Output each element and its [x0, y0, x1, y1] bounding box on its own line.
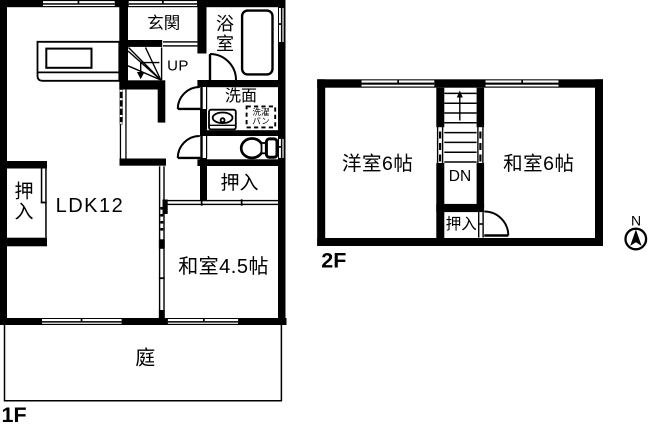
- svg-text:押入: 押入: [446, 215, 477, 233]
- svg-text:1F: 1F: [2, 403, 27, 426]
- svg-text:パン: パン: [252, 116, 269, 126]
- svg-text:浴: 浴: [216, 14, 234, 34]
- svg-text:玄関: 玄関: [147, 13, 180, 32]
- svg-text:庭: 庭: [135, 346, 155, 369]
- svg-text:押入: 押入: [220, 172, 258, 194]
- svg-text:N: N: [631, 213, 641, 229]
- svg-text:押: 押: [14, 181, 33, 203]
- svg-text:入: 入: [14, 202, 33, 223]
- svg-text:室: 室: [216, 34, 234, 54]
- svg-text:DN: DN: [449, 168, 471, 185]
- svg-text:UP: UP: [167, 58, 189, 75]
- svg-text:和室6帖: 和室6帖: [503, 153, 574, 175]
- svg-text:和室4.5帖: 和室4.5帖: [178, 255, 269, 278]
- svg-text:LDK12: LDK12: [56, 195, 125, 217]
- svg-text:洗面: 洗面: [225, 87, 257, 105]
- svg-text:2F: 2F: [321, 248, 346, 272]
- svg-text:洋室6帖: 洋室6帖: [342, 153, 413, 175]
